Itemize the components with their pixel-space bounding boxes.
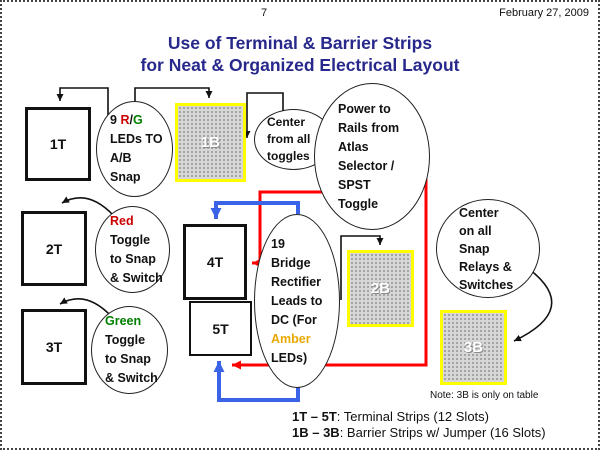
slide-title-line2: for Neat & Organized Electrical Layout (2, 54, 598, 76)
barrier-strip-3b: 3B (440, 310, 507, 385)
barrier-strip-1b: 1B (175, 103, 246, 182)
terminal-strip-5t: 5T (189, 301, 252, 356)
slide: 7 February 27, 2009 Use of Terminal & Ba… (0, 0, 600, 450)
connector-leds-to-1b (135, 88, 209, 102)
callout-red-toggle: Red Toggle to Snap & Switch (95, 206, 170, 293)
legend: 1T – 5T: Terminal Strips (12 Slots) 1B –… (292, 409, 546, 441)
barrier-strip-2b: 2B (347, 250, 414, 327)
page-number: 7 (250, 7, 278, 19)
callout-green-toggle: Green Toggle to Snap & Switch (91, 306, 168, 394)
slide-title: Use of Terminal & Barrier Strips for Nea… (2, 32, 598, 76)
callout-leds-line1: 9 R/G (110, 111, 172, 130)
legend-terminal-strips: 1T – 5T: Terminal Strips (12 Slots) (292, 409, 546, 425)
terminal-strip-2t: 2T (21, 211, 87, 286)
callout-power-rails: Power to Rails from Atlas Selector / SPS… (314, 83, 430, 230)
legend-barrier-strips: 1B – 3B: Barrier Strips w/ Jumper (16 Sl… (292, 425, 546, 441)
terminal-strip-4t: 4T (183, 224, 247, 300)
terminal-strip-1t: 1T (25, 107, 91, 181)
date: February 27, 2009 (447, 7, 589, 19)
callout-bridge-rectifier: 19 Bridge Rectifier Leads to DC (For Amb… (254, 214, 340, 388)
note-3b: Note: 3B is only on table (430, 390, 538, 401)
terminal-strip-3t: 3T (21, 309, 87, 385)
callout-center-snap: Center on all Snap Relays & Switches (436, 199, 540, 298)
callout-leds: 9 R/G LEDs TO A/B Snap (96, 101, 173, 197)
slide-title-line1: Use of Terminal & Barrier Strips (2, 32, 598, 54)
